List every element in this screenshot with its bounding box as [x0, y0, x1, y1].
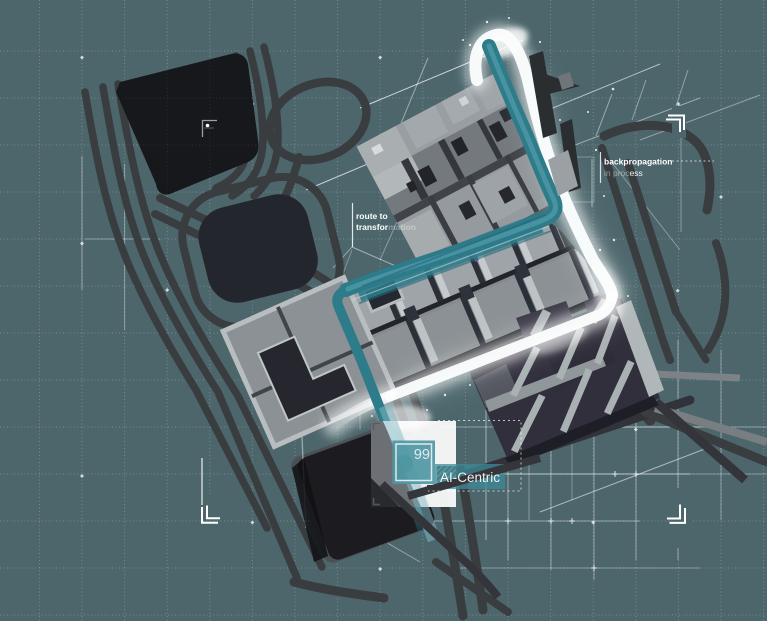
- svg-text:route to: route to: [356, 211, 388, 221]
- svg-text:AI-Centric: AI-Centric: [440, 470, 500, 485]
- svg-text:in process: in process: [604, 168, 643, 178]
- svg-text:backpropagation: backpropagation: [604, 157, 672, 167]
- svg-text:99: 99: [414, 447, 430, 463]
- svg-text:transformation: transformation: [356, 222, 416, 232]
